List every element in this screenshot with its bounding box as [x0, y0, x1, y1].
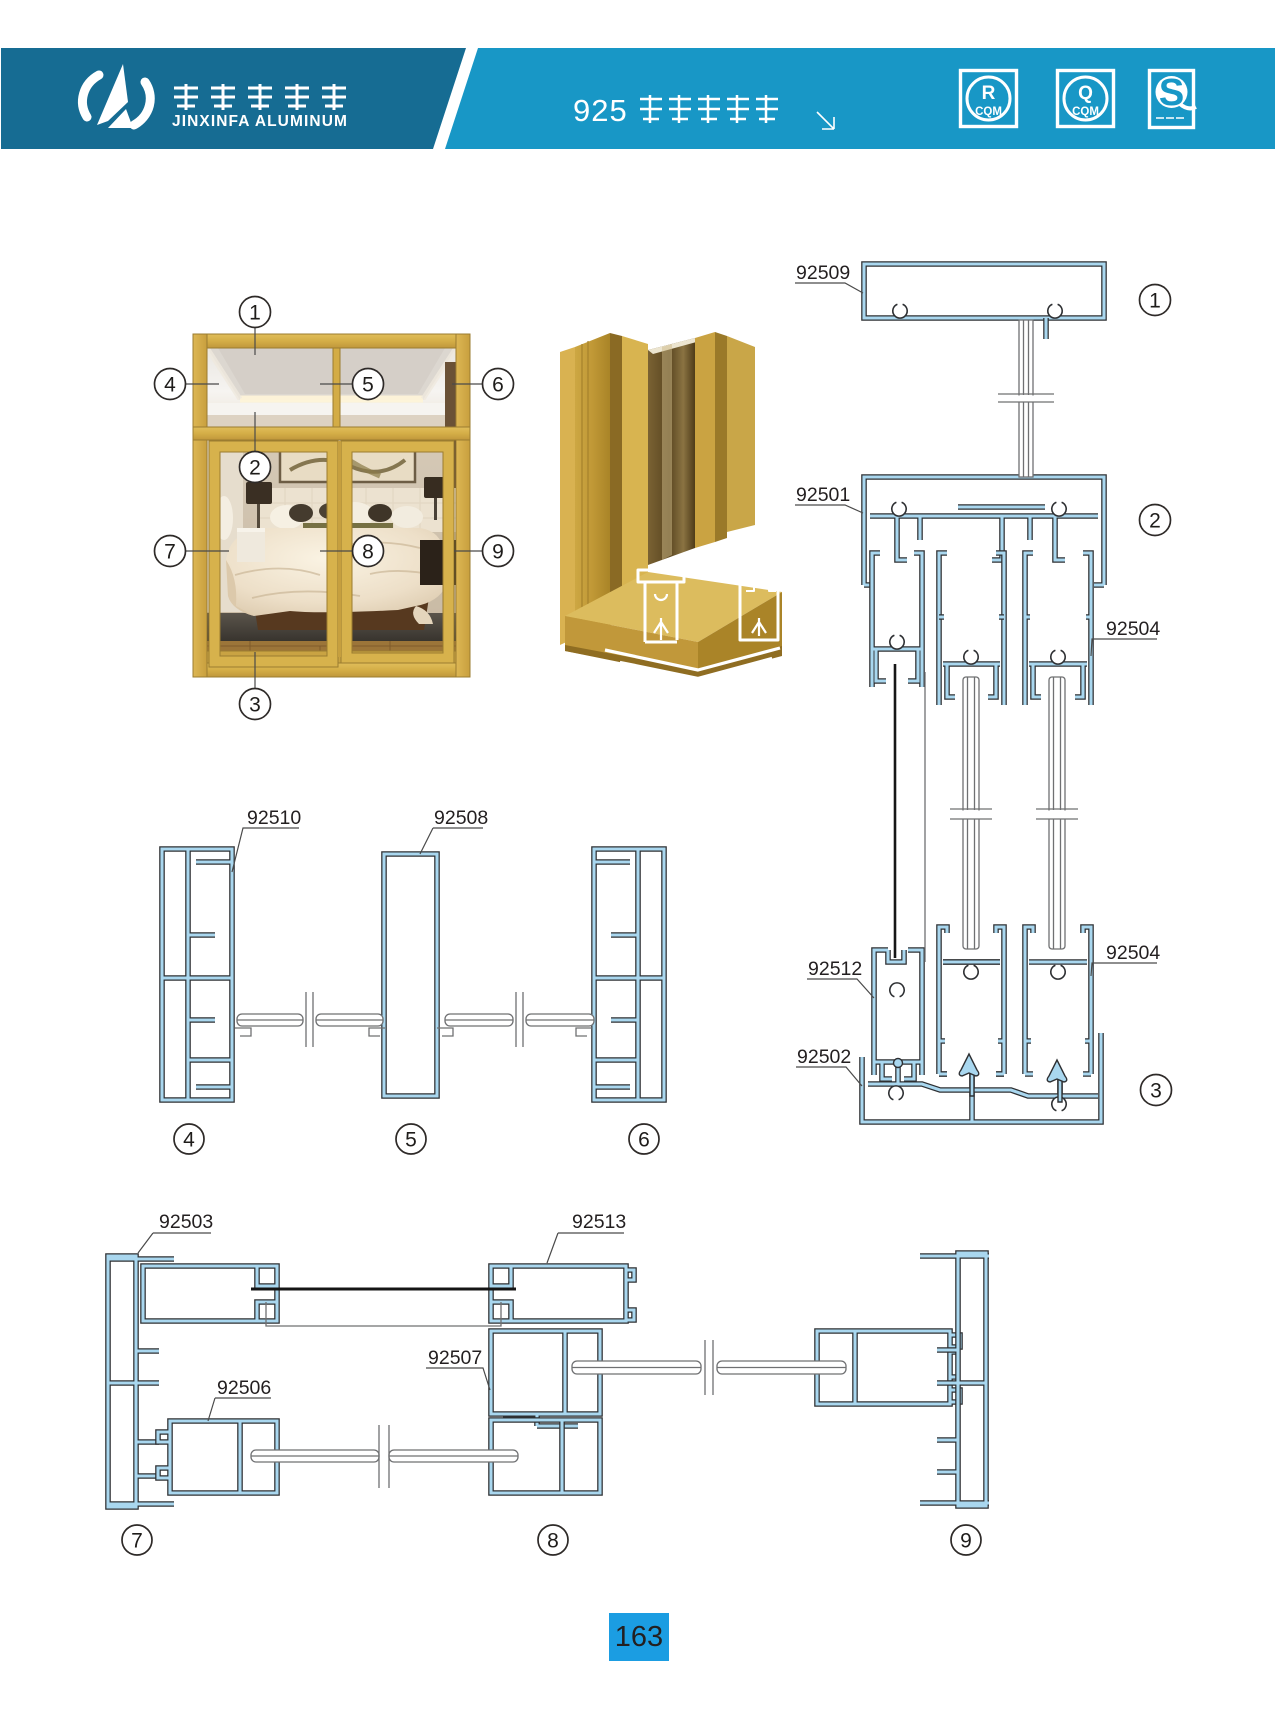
svg-text:8: 8	[362, 541, 374, 564]
svg-text:JINXINFA ALUMINUM: JINXINFA ALUMINUM	[172, 113, 348, 130]
svg-text:92504: 92504	[1106, 942, 1160, 964]
svg-text:92507: 92507	[428, 1347, 482, 1369]
svg-text:92513: 92513	[572, 1211, 626, 1233]
svg-text:9: 9	[960, 1530, 972, 1553]
svg-text:92510: 92510	[247, 807, 301, 829]
svg-text:92509: 92509	[796, 262, 850, 284]
svg-text:CQM: CQM	[975, 106, 1002, 118]
svg-text:8: 8	[547, 1530, 559, 1553]
svg-text:CQM: CQM	[1072, 106, 1099, 118]
svg-text:7: 7	[164, 541, 176, 564]
svg-text:92508: 92508	[434, 807, 488, 829]
svg-text:92501: 92501	[796, 484, 850, 506]
svg-text:S: S	[1159, 72, 1184, 114]
svg-text:92502: 92502	[797, 1046, 851, 1068]
svg-text:2: 2	[1149, 510, 1161, 533]
svg-text:5: 5	[405, 1129, 417, 1152]
svg-text:6: 6	[492, 374, 504, 397]
svg-text:R: R	[982, 83, 996, 104]
svg-text:3: 3	[249, 694, 261, 717]
svg-text:Q: Q	[1078, 83, 1093, 104]
svg-text:6: 6	[638, 1129, 650, 1152]
svg-text:9: 9	[492, 541, 504, 564]
svg-text:2: 2	[249, 457, 261, 480]
svg-text:3: 3	[1150, 1080, 1162, 1103]
svg-text:4: 4	[183, 1129, 195, 1152]
svg-text:92503: 92503	[159, 1211, 213, 1233]
svg-text:92504: 92504	[1106, 618, 1160, 640]
svg-text:92512: 92512	[808, 958, 862, 980]
svg-text:5: 5	[362, 374, 374, 397]
svg-text:1: 1	[1149, 290, 1161, 313]
svg-text:925: 925	[573, 93, 628, 128]
svg-text:1: 1	[249, 302, 261, 325]
svg-text:4: 4	[164, 374, 176, 397]
svg-text:92506: 92506	[217, 1377, 271, 1399]
svg-text:7: 7	[131, 1530, 143, 1553]
